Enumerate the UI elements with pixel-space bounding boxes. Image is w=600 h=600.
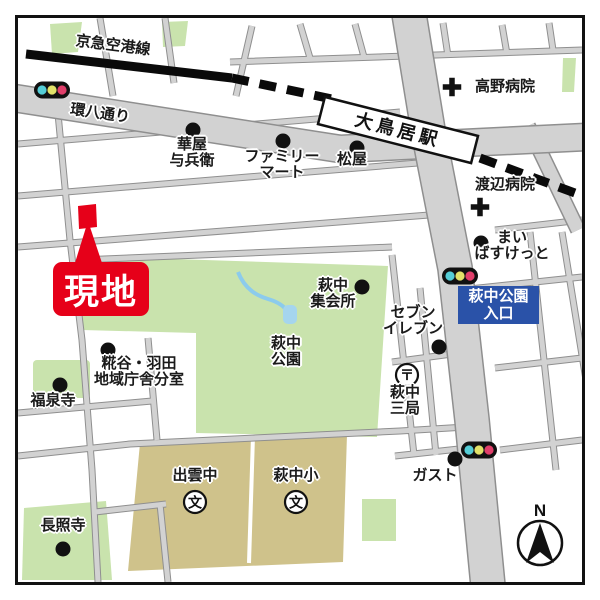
green-patch-topleft	[50, 22, 82, 54]
family-mart-dot	[276, 134, 291, 149]
park-pond	[283, 305, 297, 324]
signal-light-red	[57, 85, 66, 94]
signal-light-cyan	[445, 271, 454, 280]
hanaya-yohei-dot	[186, 123, 201, 138]
signal-light-cyan	[464, 445, 473, 454]
seven-eleven-dot	[432, 340, 447, 355]
matsuya-dot	[350, 141, 365, 156]
signal-light-cyan	[37, 85, 46, 94]
choshoji-dot	[56, 542, 71, 557]
compass	[518, 521, 562, 565]
green-patch-bottomright	[362, 499, 396, 541]
kojiya-branch-dot	[101, 343, 116, 358]
location-map: 大鳥居駅 〒 文 文	[0, 0, 600, 600]
frame-top	[0, 0, 600, 15]
frame-right	[585, 0, 600, 600]
haginaka-school-icon: 文	[285, 491, 307, 513]
fukusenji-dot	[53, 378, 68, 393]
izumo-school-icon: 文	[184, 491, 206, 513]
signal-light-red	[484, 445, 493, 454]
signal-light-yellow	[455, 271, 464, 280]
post-symbol: 〒	[400, 367, 414, 383]
school-symbol: 文	[289, 495, 304, 511]
signal-kanpachi	[34, 82, 70, 99]
signal-park-entrance	[442, 268, 478, 285]
frame-left	[0, 0, 15, 600]
map-canvas: 大鳥居駅 〒 文 文	[0, 0, 600, 600]
school-symbol: 文	[188, 495, 203, 511]
green-patch-topright	[562, 58, 576, 92]
signal-light-red	[465, 271, 474, 280]
meeting-hall-dot	[355, 280, 370, 295]
signal-light-yellow	[47, 85, 56, 94]
signal-light-yellow	[474, 445, 483, 454]
maibasket-dot	[474, 236, 489, 251]
gusto-dot	[448, 452, 463, 467]
frame-bottom	[0, 585, 600, 600]
signal-south	[461, 442, 497, 459]
post-office-icon: 〒	[396, 364, 418, 386]
